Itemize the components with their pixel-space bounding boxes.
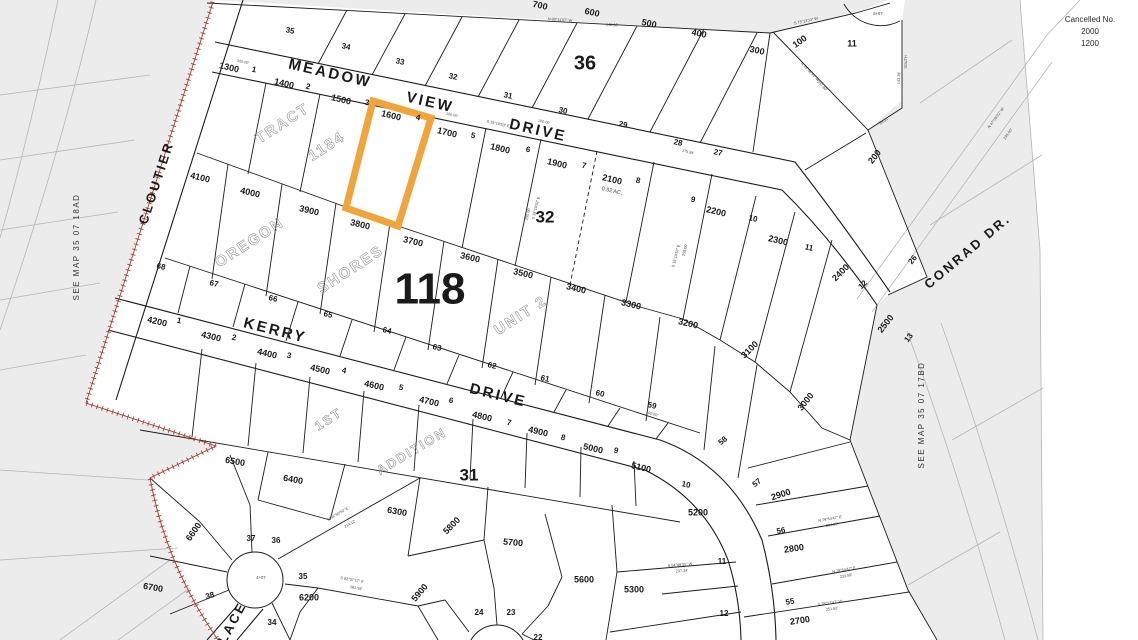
- label-63: 63: [432, 342, 443, 353]
- label-4500: 4500: [309, 362, 331, 376]
- label-see-map-35-07-18ad: SEE MAP 35 07 18AD: [72, 194, 81, 301]
- label-s-78-13-47-w: S 78°13'47" W: [818, 599, 843, 606]
- label-27: 27: [713, 147, 724, 158]
- label-5800: 5800: [441, 515, 462, 536]
- label-32: 32: [448, 71, 459, 82]
- label-148-00-: 148.00': [606, 23, 619, 28]
- label-28: 28: [673, 137, 684, 148]
- label-22: 22: [534, 633, 543, 640]
- label-4700: 4700: [418, 394, 440, 408]
- label-12: 12: [720, 609, 729, 618]
- label-5: 5: [398, 383, 405, 393]
- label-3000: 3000: [795, 391, 815, 413]
- label-29: 29: [618, 119, 629, 130]
- label-59: 59: [647, 400, 658, 411]
- label-6200: 6200: [299, 592, 319, 602]
- label-drive: DRIVE: [468, 380, 529, 411]
- label-6: 6: [525, 145, 532, 155]
- label-addition: ADDITION: [374, 424, 449, 477]
- label-2300: 2300: [767, 233, 789, 247]
- label-237-80-: 237.80': [816, 80, 828, 92]
- label-9: 9: [690, 195, 697, 205]
- label-5: 5: [470, 131, 477, 141]
- label-2: 2: [305, 82, 312, 92]
- label-300: 300: [749, 44, 766, 57]
- label-6500: 6500: [224, 455, 245, 468]
- label-8-97: 8+97: [873, 11, 883, 16]
- label-4100: 4100: [189, 170, 211, 184]
- label-see-map-35-07-17bd: SEE MAP 35 07 17BD: [917, 362, 926, 469]
- label-2200: 2200: [705, 204, 727, 218]
- label-1400: 1400: [273, 76, 295, 90]
- map-labels: MEADOWVIEWDRIVEKERRYDRIVECLOUTIERCONRAD …: [72, 0, 1013, 640]
- label-unit-2: UNIT 2: [491, 292, 550, 339]
- label-4800: 4800: [471, 409, 493, 423]
- label-5900: 5900: [409, 582, 430, 604]
- label-65: 65: [323, 309, 334, 320]
- label-7: 7: [581, 161, 588, 171]
- label-11: 11: [847, 38, 857, 48]
- label-143-28-: 143.28': [897, 71, 901, 84]
- label-5200: 5200: [688, 507, 708, 517]
- label-11: 11: [718, 557, 727, 566]
- label-s-82-37-17-e: S 82°37'17" E: [340, 576, 364, 584]
- label-3700: 3700: [402, 234, 424, 248]
- label-meadow: MEADOW: [287, 56, 374, 92]
- label-1900: 1900: [546, 156, 568, 170]
- label-1500: 1500: [330, 92, 352, 106]
- label-3500: 3500: [512, 266, 534, 280]
- label-61: 61: [540, 373, 551, 384]
- label-3300: 3300: [620, 297, 642, 311]
- label-66: 66: [268, 293, 279, 304]
- label-5300: 5300: [624, 584, 644, 594]
- label-56: 56: [776, 525, 787, 536]
- label-4000: 4000: [239, 185, 261, 199]
- label-2100: 2100: [601, 172, 623, 186]
- label-0-92-ac-: 0.92 AC.: [601, 186, 623, 197]
- label-500: 500: [641, 17, 658, 30]
- label-31: 31: [503, 90, 514, 101]
- label-62: 62: [487, 360, 498, 371]
- label-251-62-: 251.62': [826, 606, 839, 612]
- label-38: 38: [204, 590, 215, 601]
- label-34: 34: [341, 41, 352, 52]
- label-1st: 1ST: [312, 405, 345, 434]
- label-237-34-: 237.34': [676, 569, 689, 574]
- label-shores: SHORES: [314, 242, 386, 297]
- label-6300: 6300: [386, 505, 407, 518]
- label-35: 35: [285, 25, 296, 36]
- label-3400: 3400: [565, 281, 587, 295]
- label-31: 31: [460, 465, 479, 484]
- label-9: 9: [613, 446, 620, 456]
- label-24: 24: [475, 608, 484, 617]
- label-181-59-: 181.59': [350, 585, 363, 591]
- label-4900: 4900: [527, 424, 549, 438]
- label-233-59-: 233.59': [840, 573, 853, 579]
- label-4300: 4300: [200, 329, 222, 343]
- label-n-79-54-47-e: N 79°54'47" E: [818, 515, 842, 523]
- label-4400: 4400: [256, 346, 278, 360]
- label-5100: 5100: [630, 460, 652, 474]
- label-255-00-: 255.00': [682, 243, 689, 256]
- cul-de-sac: [467, 625, 527, 640]
- label-oregon: OREGON: [212, 214, 287, 271]
- label-3200: 3200: [677, 316, 699, 330]
- label-12: 12: [856, 278, 869, 291]
- label-100-00-: 100.00': [646, 410, 659, 417]
- label-3900: 3900: [298, 203, 320, 217]
- label-36: 36: [574, 52, 596, 74]
- label-23: 23: [507, 608, 516, 617]
- label-10: 10: [681, 479, 692, 490]
- label-6: 6: [448, 396, 455, 406]
- label-234-85-: 234.85': [826, 522, 839, 528]
- label-5000: 5000: [582, 441, 604, 455]
- cancelled-title: Cancelled No.: [1044, 14, 1136, 26]
- label-5700: 5700: [503, 537, 524, 549]
- label-s-19-19-53-e: S 19°19'53" E: [671, 244, 681, 268]
- label-60: 60: [595, 388, 606, 399]
- label-8: 8: [560, 433, 567, 443]
- label-kerry: KERRY: [242, 314, 309, 346]
- label-south: SOUTH: [904, 55, 908, 69]
- label-100-00-: 100.00': [446, 112, 459, 119]
- label-4: 4: [341, 366, 348, 376]
- label-2800: 2800: [783, 542, 804, 555]
- label-6400: 6400: [282, 473, 303, 486]
- meadow-view-drive-edge: [212, 72, 877, 305]
- label-3100: 3100: [739, 339, 760, 360]
- label-5600: 5600: [574, 574, 594, 584]
- label-37: 37: [247, 534, 256, 543]
- label-64: 64: [382, 325, 393, 336]
- label-7: 7: [506, 418, 513, 428]
- label-n-80-11-07-w: N 80°11'07" W: [548, 17, 573, 23]
- label-3800: 3800: [349, 217, 371, 231]
- label-6600: 6600: [184, 521, 204, 543]
- label-400: 400: [691, 27, 708, 40]
- label-57: 57: [750, 476, 763, 489]
- label-11: 11: [804, 242, 815, 253]
- label-s-54-48-55-w: S 54°48'55" W: [668, 562, 693, 568]
- label-35: 35: [299, 572, 308, 581]
- label-67: 67: [209, 278, 220, 289]
- label-100: 100: [791, 33, 809, 50]
- label-1700: 1700: [436, 125, 458, 139]
- label-4600: 4600: [363, 378, 385, 392]
- label-58: 58: [716, 434, 729, 447]
- label-26: 26: [906, 253, 919, 266]
- label-118: 118: [395, 265, 466, 314]
- label-s-19-19-53-e: S 19°19'53" E: [486, 120, 510, 129]
- cancelled-numbers-note: Cancelled No. 2000 1200: [1044, 14, 1136, 50]
- label-33: 33: [395, 56, 406, 67]
- label-4200: 4200: [146, 314, 168, 328]
- cancelled-number: 2000: [1044, 26, 1136, 38]
- cancelled-number: 1200: [1044, 38, 1136, 50]
- label-55: 55: [785, 596, 796, 607]
- label-36: 36: [272, 536, 281, 545]
- label-n-45-58-40-w: N 45°58'40" W: [800, 62, 820, 83]
- label-lace: LACE: [215, 599, 250, 640]
- label-2700: 2700: [789, 614, 810, 627]
- label-1: 1: [251, 65, 258, 75]
- label-1: 1: [176, 316, 183, 326]
- label-3: 3: [286, 351, 293, 361]
- label-n-79-54-47-e: N 79°54'47" E: [832, 566, 856, 574]
- label-2: 2: [231, 333, 238, 343]
- label-4-07: 4+07: [256, 575, 266, 580]
- label-32: 32: [536, 207, 555, 226]
- label-34: 34: [268, 618, 277, 627]
- label-1800: 1800: [489, 141, 511, 155]
- plat-map-page: MEADOWVIEWDRIVEKERRYDRIVECLOUTIERCONRAD …: [0, 0, 1138, 640]
- label-8: 8: [635, 176, 642, 186]
- label-175-34-: 175.34': [682, 149, 695, 156]
- plat-map-canvas[interactable]: MEADOWVIEWDRIVEKERRYDRIVECLOUTIERCONRAD …: [0, 0, 1138, 640]
- label-n-56-50-50-e: N 56°50'50" E: [327, 506, 350, 522]
